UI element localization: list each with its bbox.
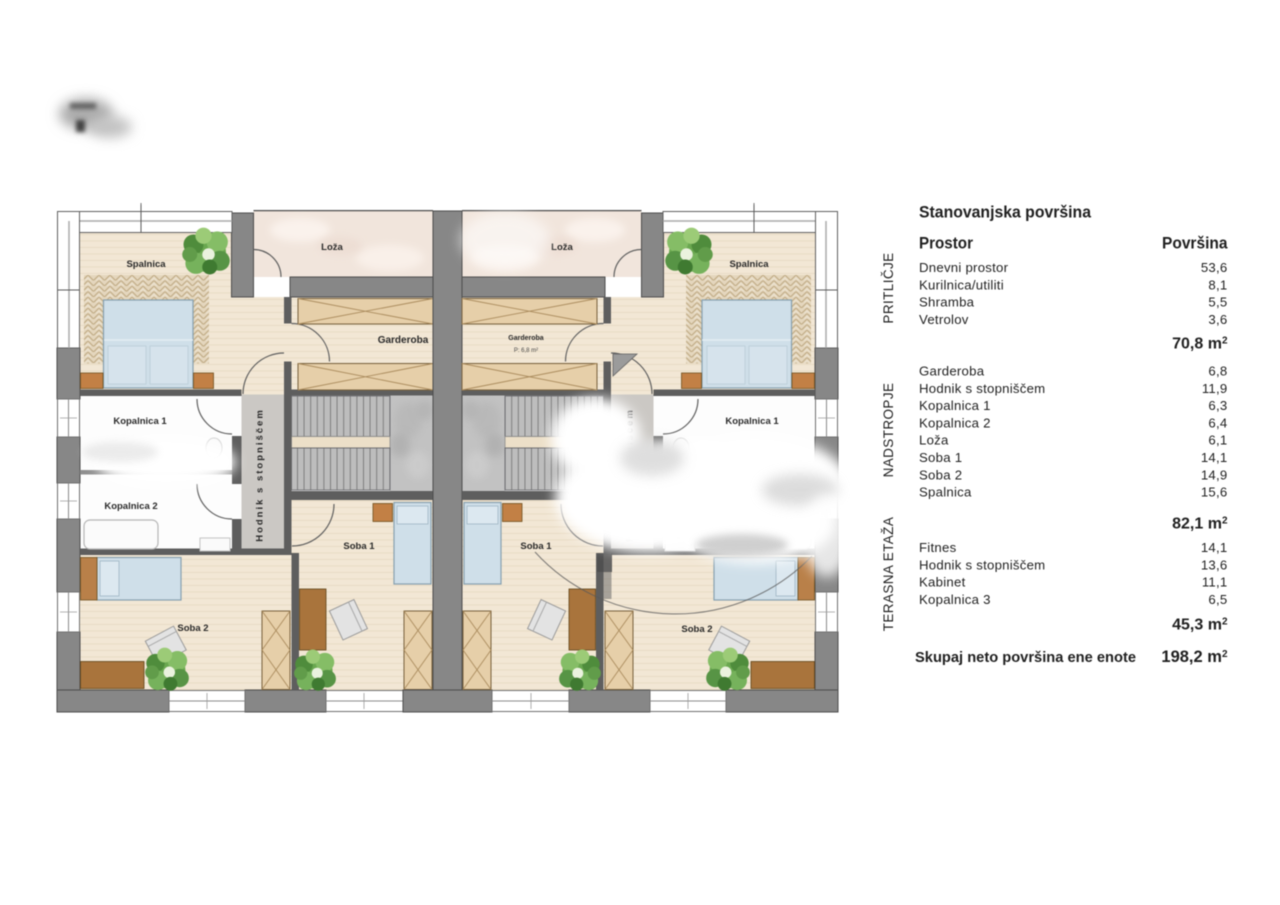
svg-text:3,6: 3,6 <box>1208 312 1227 327</box>
svg-text:Kopalnica 1: Kopalnica 1 <box>725 416 779 427</box>
svg-text:11,1: 11,1 <box>1202 575 1228 590</box>
svg-text:Spalnica: Spalnica <box>126 259 166 270</box>
svg-text:70,8 m2: 70,8 m2 <box>1172 336 1228 353</box>
svg-text:Kopalnica 1: Kopalnica 1 <box>113 416 167 427</box>
svg-text:14,9: 14,9 <box>1201 467 1228 482</box>
svg-text:Prostor: Prostor <box>919 235 974 253</box>
svg-text:11,9: 11,9 <box>1202 381 1228 396</box>
svg-text:Kopalnica 2: Kopalnica 2 <box>104 501 157 512</box>
svg-text:Stanovanjska površina: Stanovanjska površina <box>919 204 1092 222</box>
svg-text:6,5: 6,5 <box>1208 592 1227 607</box>
svg-text:P: 6,8 m²: P: 6,8 m² <box>514 348 538 354</box>
svg-text:Soba 2: Soba 2 <box>919 467 962 482</box>
svg-text:Kurilnica/utiliti: Kurilnica/utiliti <box>919 277 1004 292</box>
svg-text:5,5: 5,5 <box>1208 295 1227 310</box>
svg-text:82,1 m2: 82,1 m2 <box>1172 516 1228 533</box>
svg-text:Soba 1: Soba 1 <box>343 541 375 552</box>
svg-text:Hodnik s stopniščem: Hodnik s stopniščem <box>255 408 266 542</box>
svg-text:Soba 2: Soba 2 <box>681 624 712 635</box>
svg-text:NADSTROPJE: NADSTROPJE <box>881 383 896 478</box>
svg-text:6,8: 6,8 <box>1208 364 1227 379</box>
svg-text:Garderoba: Garderoba <box>919 364 985 379</box>
svg-text:Soba 1: Soba 1 <box>520 541 552 552</box>
svg-text:Kopalnica 2: Kopalnica 2 <box>919 415 991 430</box>
svg-text:14,1: 14,1 <box>1201 450 1228 465</box>
svg-text:15,6: 15,6 <box>1201 485 1228 500</box>
svg-text:14,1: 14,1 <box>1201 540 1228 555</box>
svg-text:Dnevni prostor: Dnevni prostor <box>919 260 1009 275</box>
svg-text:Fitnes: Fitnes <box>919 540 957 555</box>
svg-text:53,6: 53,6 <box>1201 260 1228 275</box>
svg-text:Spalnica: Spalnica <box>729 259 769 270</box>
svg-text:Shramba: Shramba <box>919 295 975 310</box>
svg-text:Površina: Površina <box>1162 235 1228 253</box>
svg-text:8,1: 8,1 <box>1208 277 1227 292</box>
svg-text:Kopalnica 1: Kopalnica 1 <box>919 398 991 413</box>
svg-text:TERASNA ETAŽA: TERASNA ETAŽA <box>881 517 896 631</box>
svg-text:Loža: Loža <box>321 242 343 253</box>
svg-text:Hodnik s stopniščem: Hodnik s stopniščem <box>919 557 1045 572</box>
svg-text:Loža: Loža <box>919 433 949 448</box>
svg-text:Soba 2: Soba 2 <box>177 623 208 634</box>
svg-text:Vetrolov: Vetrolov <box>919 312 969 327</box>
svg-text:Soba 1: Soba 1 <box>919 450 962 465</box>
svg-text:Spalnica: Spalnica <box>919 485 972 500</box>
svg-text:Garderoba: Garderoba <box>378 335 429 346</box>
svg-text:6,1: 6,1 <box>1208 433 1227 448</box>
svg-text:Hodnik s stopniščem: Hodnik s stopniščem <box>919 381 1045 396</box>
svg-text:Kopalnica 3: Kopalnica 3 <box>919 592 991 607</box>
svg-text:Loža: Loža <box>551 242 573 253</box>
svg-text:45,3 m2: 45,3 m2 <box>1172 617 1228 634</box>
svg-text:Skupaj neto površina ene enote: Skupaj neto površina ene enote <box>915 649 1136 666</box>
svg-text:Kabinet: Kabinet <box>919 575 966 590</box>
svg-text:13,6: 13,6 <box>1201 557 1228 572</box>
svg-text:6,3: 6,3 <box>1208 398 1227 413</box>
svg-text:6,4: 6,4 <box>1208 415 1227 430</box>
svg-text:198,2 m2: 198,2 m2 <box>1161 648 1228 666</box>
svg-text:Garderoba: Garderoba <box>508 335 544 342</box>
svg-text:PRITLIČJE: PRITLIČJE <box>881 252 896 323</box>
